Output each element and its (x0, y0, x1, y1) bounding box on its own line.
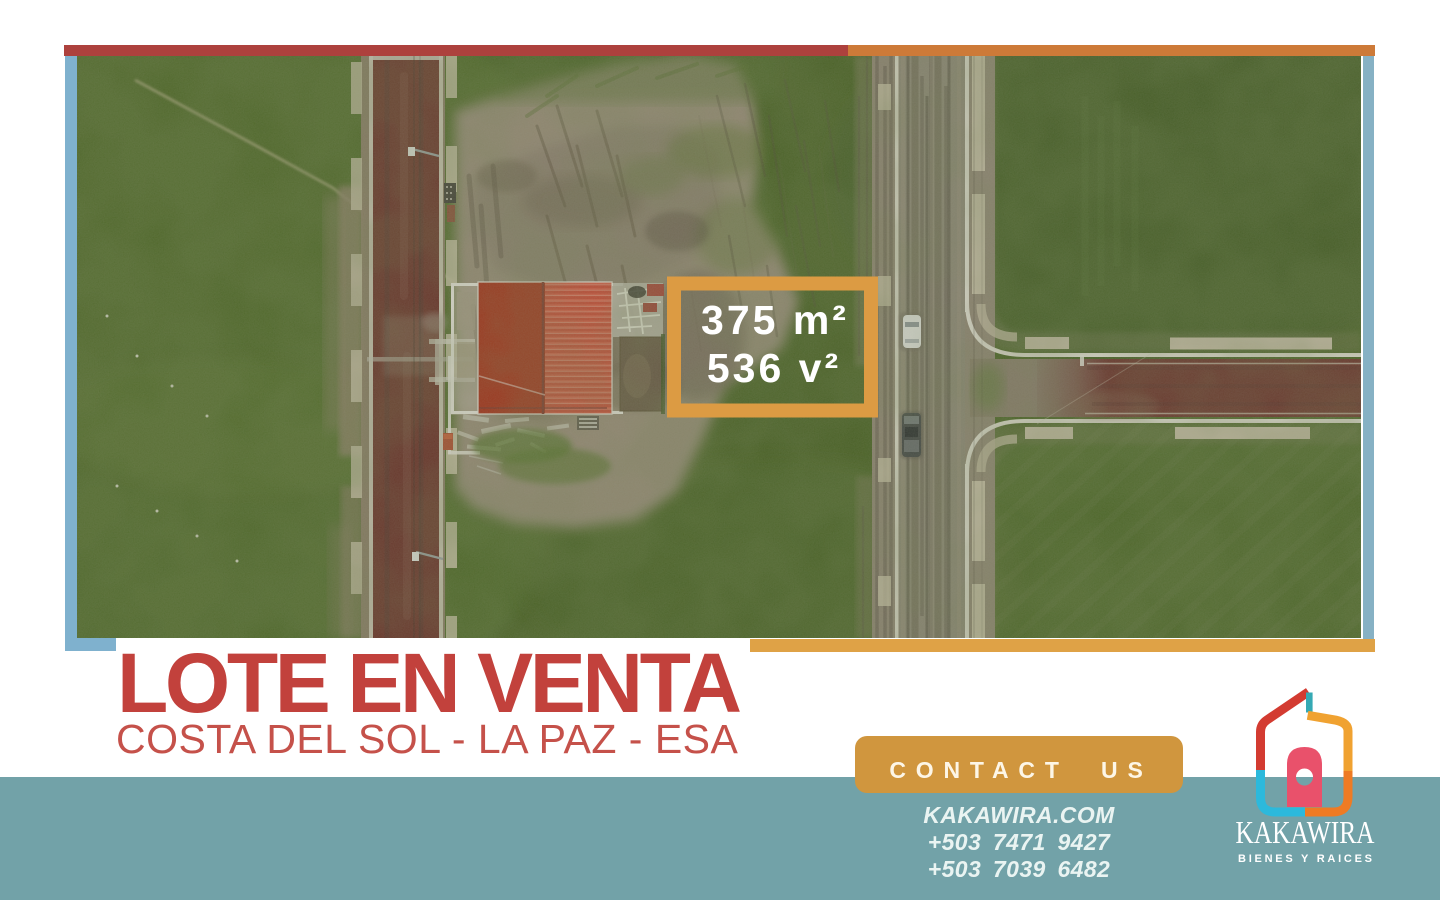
svg-text:BIENES Y RAICES: BIENES Y RAICES (1238, 853, 1372, 865)
svg-text:536 v²: 536 v² (707, 345, 841, 391)
svg-text:KAKAWIRA: KAKAWIRA (1236, 814, 1375, 850)
svg-text:375 m²: 375 m² (701, 297, 849, 343)
